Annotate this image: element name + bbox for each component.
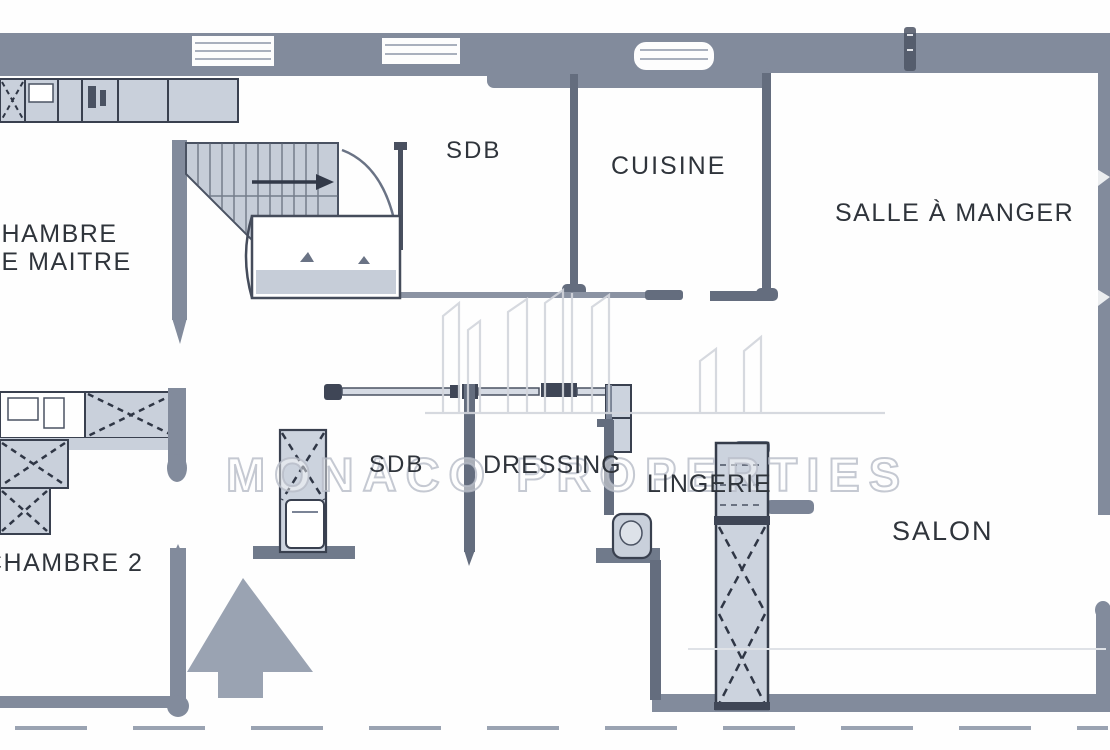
master-bedroom-closets — [0, 79, 238, 122]
staircase — [186, 142, 407, 298]
floor-plan: MONACO PROPERTIES CHAMBRE DE MAITRE SDB … — [0, 0, 1110, 750]
room-label-sdb-haut: SDB — [446, 137, 501, 165]
exterior-walls — [0, 33, 1110, 712]
dimension-mark — [904, 27, 916, 71]
room-label-dressing: DRESSING — [483, 451, 622, 480]
floor-plan-drawing — [0, 0, 1110, 750]
room-label-chambre-maitre-line1: CHAMBRE — [0, 220, 132, 248]
bedroom2-closets — [0, 388, 187, 534]
room-label-chambre-maitre-line2: DE MAITRE — [0, 248, 132, 276]
toilet — [613, 514, 651, 558]
room-label-salon: SALON — [892, 516, 994, 547]
room-label-salle-a-manger: SALLE À MANGER — [835, 199, 1074, 228]
room-label-cuisine: CUISINE — [611, 152, 726, 181]
room-label-chambre-2: CHAMBRE 2 — [0, 549, 143, 578]
room-label-lingerie: LINGERIE — [647, 470, 772, 499]
room-label-sdb-bas: SDB — [369, 451, 424, 479]
room-label-chambre-maitre: CHAMBRE DE MAITRE — [0, 220, 132, 276]
lingerie-walls — [597, 385, 770, 710]
north-arrow — [187, 578, 313, 698]
bathtub — [246, 216, 400, 298]
